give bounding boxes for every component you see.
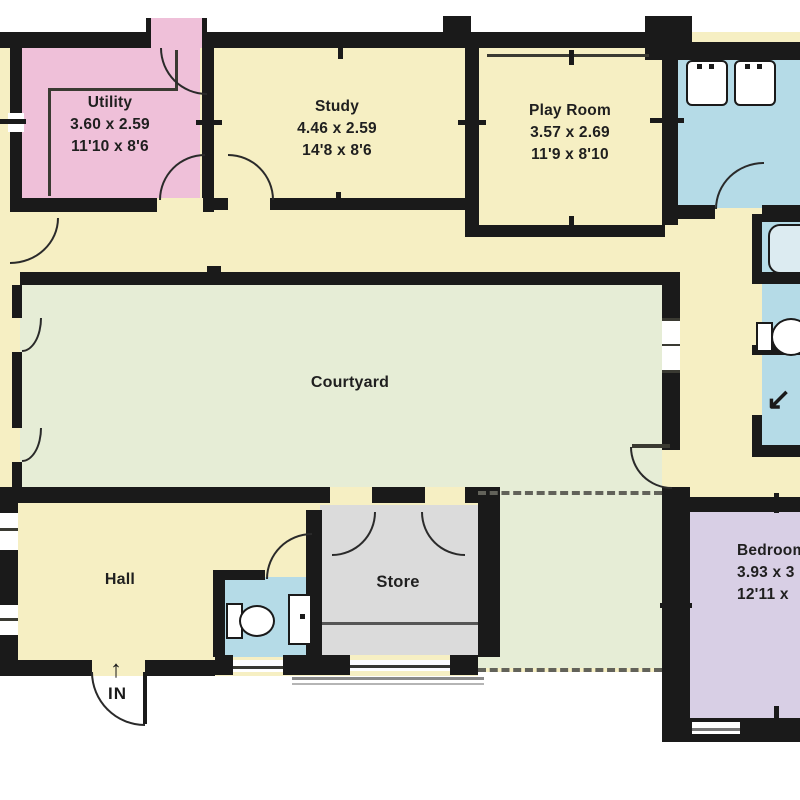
- wall: [145, 660, 215, 676]
- wall: [0, 32, 150, 48]
- dimension-tick: [336, 192, 341, 208]
- room-name: Store: [318, 571, 478, 593]
- window-line: [662, 344, 680, 346]
- utility-door-recess: [151, 18, 202, 48]
- wall: [662, 205, 715, 219]
- paving-line: [292, 677, 484, 680]
- window-hall-left: [0, 513, 18, 550]
- dimension-tick: [0, 119, 26, 124]
- wall: [662, 487, 690, 740]
- dimension-tick: [660, 603, 692, 608]
- wall: [10, 48, 22, 113]
- wall: [10, 132, 22, 198]
- wall: [215, 570, 265, 580]
- paving-line: [292, 683, 484, 685]
- dimension-tick: [569, 216, 574, 233]
- room-dim-m: 3.57 x 2.69: [490, 122, 650, 144]
- kitchen-sink-tap: [697, 64, 702, 69]
- shower-arrow-icon: ↙: [766, 382, 791, 417]
- outside-bottom-left: [0, 676, 478, 746]
- wall: [0, 500, 18, 513]
- wall: [752, 445, 800, 457]
- wall: [12, 352, 22, 428]
- wall: [465, 487, 478, 503]
- wall: [662, 42, 800, 60]
- wall: [0, 550, 18, 605]
- wall: [752, 214, 762, 272]
- wall: [270, 198, 470, 210]
- wall: [320, 655, 350, 675]
- wall: [662, 373, 680, 450]
- window-line: [0, 528, 18, 531]
- window-line: [692, 728, 740, 731]
- wall: [205, 32, 662, 48]
- room-dim-ft: 12'11 x: [737, 584, 800, 606]
- room-name: Play Room: [490, 100, 650, 122]
- wall: [215, 655, 233, 675]
- wc-basin-tap: [300, 614, 305, 619]
- wall: [450, 655, 478, 675]
- wall: [213, 570, 225, 657]
- room-dim-ft: 14'8 x 8'6: [257, 140, 417, 162]
- kitchen-sink: [686, 60, 728, 106]
- wall: [690, 497, 800, 512]
- wall: [146, 18, 151, 48]
- wall-stub: [207, 266, 221, 274]
- wall: [214, 198, 228, 210]
- dimension-tick: [338, 46, 343, 59]
- room-label-store: Store: [318, 571, 478, 593]
- wall: [0, 487, 330, 503]
- window-line: [662, 370, 680, 373]
- dimension-tick: [569, 50, 574, 65]
- wc-basin: [288, 594, 312, 645]
- outside-below-garden: [478, 672, 668, 746]
- room-dim-m: 3.60 x 2.59: [30, 114, 190, 136]
- wall: [465, 48, 479, 225]
- room-name: Bedroom: [737, 540, 800, 562]
- room-label-playroom: Play Room 3.57 x 2.69 11'9 x 8'10: [490, 100, 650, 166]
- entry-arrow-icon: ↑: [110, 656, 122, 684]
- room-label-courtyard: Courtyard: [270, 372, 430, 394]
- utility-counter: [48, 88, 178, 91]
- window-line: [0, 618, 18, 621]
- toilet-wc-bowl: [239, 605, 275, 637]
- wall: [203, 198, 214, 212]
- open-boundary-dashed: [478, 668, 662, 672]
- room-name: Courtyard: [270, 372, 430, 394]
- wall: [662, 272, 680, 318]
- wall: [283, 655, 320, 675]
- wall-pier: [443, 16, 471, 48]
- room-label-bedroom: Bedroom 3.93 x 3 12'11 x: [737, 540, 800, 606]
- wall: [12, 285, 22, 318]
- room-dim-ft: 11'10 x 8'6: [30, 136, 190, 158]
- entry-label: IN: [108, 684, 127, 704]
- wall: [10, 198, 157, 212]
- kitchen-sink-tap: [757, 64, 762, 69]
- door-leaf-entry: [143, 672, 147, 724]
- window-playroom-top: [487, 54, 649, 57]
- floor-plan: ↙ ↑ IN Utility 3.60 x 2.59 11'10 x 8'6 S…: [0, 0, 800, 800]
- wall: [465, 225, 665, 237]
- room-label-utility: Utility 3.60 x 2.59 11'10 x 8'6: [30, 92, 190, 158]
- wall: [372, 487, 425, 503]
- window-line: [662, 318, 680, 321]
- dimension-tick: [650, 118, 684, 123]
- kitchen-sink-tap: [745, 64, 750, 69]
- room-label-hall: Hall: [40, 569, 200, 591]
- margin-bottom: [0, 742, 800, 800]
- room-label-study: Study 4.46 x 2.59 14'8 x 8'6: [257, 96, 417, 162]
- wall: [662, 42, 678, 225]
- wall: [20, 272, 662, 285]
- room-name: Utility: [30, 92, 190, 114]
- kitchen-sink: [734, 60, 776, 106]
- kitchen-sink-tap: [709, 64, 714, 69]
- room-name: Study: [257, 96, 417, 118]
- dimension-tick: [774, 493, 779, 513]
- wall: [478, 487, 500, 657]
- room-dim-m: 3.93 x 3: [737, 562, 800, 584]
- store-shelf-line: [322, 622, 478, 625]
- room-dim-m: 4.46 x 2.59: [257, 118, 417, 140]
- dimension-tick: [196, 120, 222, 125]
- window-line: [350, 665, 450, 668]
- dimension-tick: [774, 706, 779, 720]
- wall: [0, 660, 92, 676]
- wall: [202, 18, 207, 48]
- open-boundary-dashed: [478, 491, 662, 495]
- courtyard-garden-extension: [478, 487, 662, 668]
- window-line: [233, 666, 283, 669]
- room-dim-ft: 11'9 x 8'10: [490, 144, 650, 166]
- room-name: Hall: [40, 569, 200, 591]
- bathtub: [768, 224, 800, 274]
